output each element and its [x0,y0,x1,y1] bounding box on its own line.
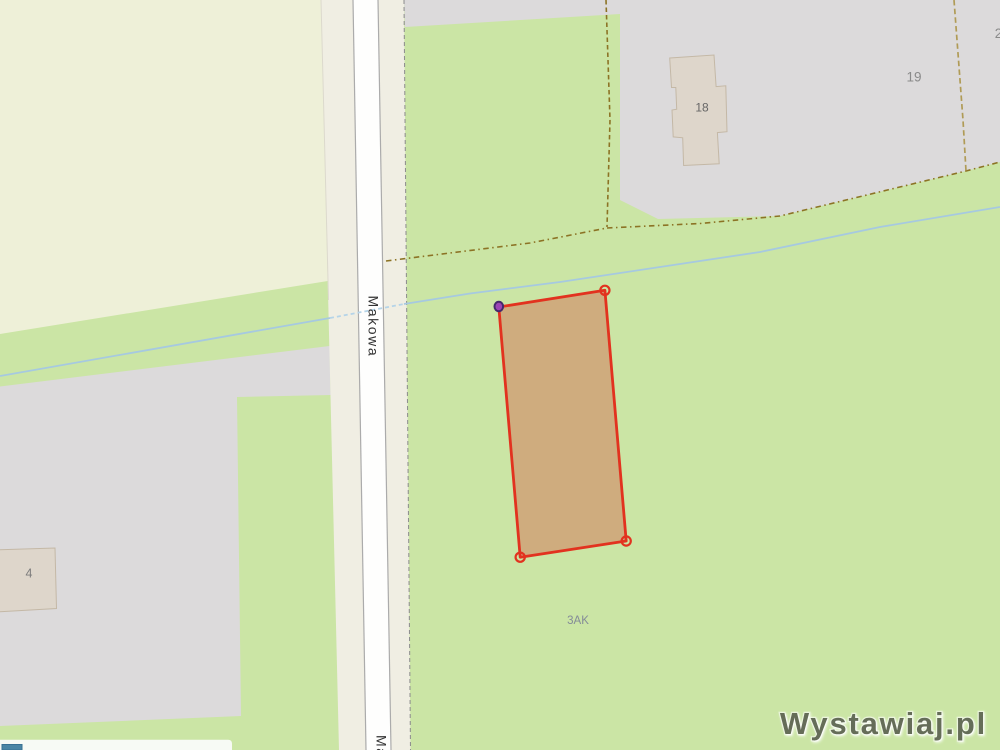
svg-text:Wystawiaj.pl: Wystawiaj.pl [780,706,987,741]
svg-text:3AK: 3AK [567,615,589,627]
svg-text:Makowa: Makowa [374,735,390,750]
svg-text:2: 2 [995,26,1000,41]
svg-text:Makowa: Makowa [366,296,382,358]
svg-text:19: 19 [906,70,921,85]
svg-text:18: 18 [695,101,709,115]
svg-text:4: 4 [26,567,33,581]
